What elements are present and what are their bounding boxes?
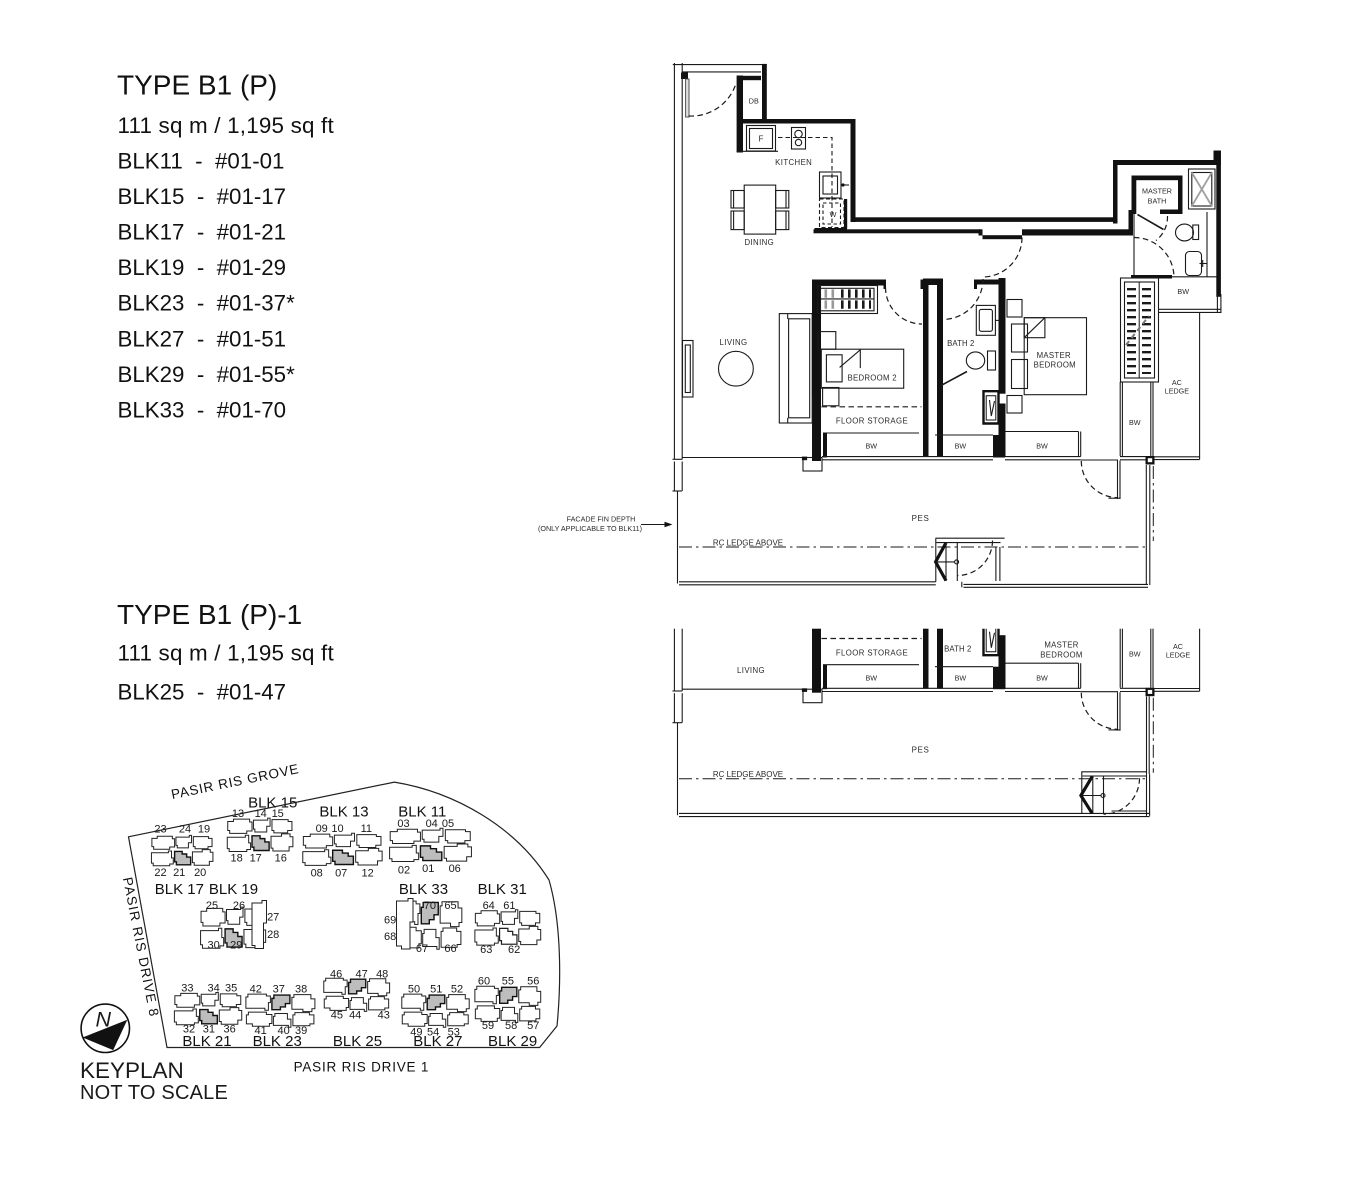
svg-text:59: 59 [482, 1020, 494, 1032]
svg-text:17: 17 [250, 853, 262, 865]
svg-text:38: 38 [295, 984, 307, 996]
svg-text:68: 68 [384, 931, 396, 943]
svg-text:TYPE B1 (P): TYPE B1 (P) [117, 70, 277, 101]
svg-text:37: 37 [273, 984, 285, 996]
svg-text:49: 49 [410, 1027, 422, 1039]
svg-text:05: 05 [442, 818, 454, 830]
svg-text:DINING: DINING [744, 238, 774, 247]
svg-text:27: 27 [267, 911, 279, 923]
svg-text:LIVING: LIVING [737, 666, 765, 675]
svg-text:111 sq m / 1,195 sq ft: 111 sq m / 1,195 sq ft [118, 113, 335, 138]
svg-text:14: 14 [255, 808, 267, 820]
svg-text:61: 61 [503, 900, 515, 912]
svg-text:07: 07 [335, 868, 347, 880]
svg-text:DB: DB [749, 96, 759, 105]
svg-text:22: 22 [154, 867, 166, 879]
svg-text:BLK 31: BLK 31 [478, 881, 527, 898]
svg-text:20: 20 [194, 867, 206, 879]
svg-text:10: 10 [331, 823, 343, 835]
svg-text:29: 29 [230, 939, 242, 951]
svg-text:BW: BW [1129, 418, 1141, 427]
svg-text:16: 16 [275, 853, 287, 865]
svg-text:03: 03 [397, 818, 409, 830]
svg-text:FACADE FIN DEPTH: FACADE FIN DEPTH [567, 515, 636, 524]
svg-text:32: 32 [183, 1023, 195, 1035]
svg-text:FLOOR STORAGE: FLOOR STORAGE [836, 417, 908, 426]
svg-text:08: 08 [311, 868, 323, 880]
svg-text:111 sq m / 1,195 sq ft: 111 sq m / 1,195 sq ft [118, 641, 335, 666]
svg-text:44: 44 [349, 1010, 361, 1022]
svg-text:BLK17 - #01-21: BLK17 - #01-21 [118, 220, 287, 245]
svg-text:04: 04 [426, 818, 438, 830]
svg-text:19: 19 [198, 824, 210, 836]
svg-text:34: 34 [207, 983, 219, 995]
svg-text:47: 47 [355, 968, 367, 980]
svg-text:BLK29 - #01-55*: BLK29 - #01-55* [118, 362, 296, 387]
svg-text:56: 56 [527, 976, 539, 988]
svg-text:09: 09 [316, 823, 328, 835]
svg-text:24: 24 [179, 824, 191, 836]
svg-text:40: 40 [277, 1025, 289, 1037]
svg-text:KITCHEN: KITCHEN [775, 158, 812, 167]
svg-text:48: 48 [376, 968, 388, 980]
svg-text:30: 30 [207, 939, 219, 951]
svg-text:65: 65 [444, 900, 456, 912]
svg-text:PASIR RIS DRIVE 1: PASIR RIS DRIVE 1 [294, 1060, 430, 1075]
svg-text:KEYPLAN: KEYPLAN [80, 1058, 184, 1083]
svg-text:BW: BW [1036, 442, 1048, 451]
svg-text:06: 06 [449, 863, 461, 875]
svg-text:BLK27 - #01-51: BLK27 - #01-51 [118, 327, 287, 352]
svg-text:BLK 33: BLK 33 [399, 881, 448, 898]
svg-text:F: F [759, 135, 764, 144]
svg-text:23: 23 [154, 824, 166, 836]
svg-text:43: 43 [378, 1010, 390, 1022]
svg-text:RC LEDGE ABOVE: RC LEDGE ABOVE [713, 538, 783, 547]
svg-text:54: 54 [427, 1027, 439, 1039]
svg-text:BATH 2: BATH 2 [944, 645, 971, 654]
svg-text:01: 01 [422, 863, 434, 875]
svg-text:67: 67 [416, 943, 428, 955]
svg-text:28: 28 [267, 929, 279, 941]
svg-text:70: 70 [424, 900, 436, 912]
svg-text:58: 58 [505, 1020, 517, 1032]
svg-text:BATH: BATH [1148, 197, 1167, 206]
svg-text:13: 13 [232, 808, 244, 820]
svg-text:02: 02 [398, 864, 410, 876]
svg-text:(ONLY APPLICABLE TO BLK11): (ONLY APPLICABLE TO BLK11) [538, 524, 642, 533]
svg-text:MASTER: MASTER [1037, 351, 1071, 360]
svg-text:BLK19 - #01-29: BLK19 - #01-29 [118, 255, 287, 280]
svg-text:12: 12 [361, 868, 373, 880]
svg-text:57: 57 [527, 1020, 539, 1032]
svg-text:26: 26 [233, 900, 245, 912]
svg-text:62: 62 [508, 944, 520, 956]
svg-text:35: 35 [225, 983, 237, 995]
svg-text:PES: PES [912, 514, 930, 523]
svg-text:BLK23 - #01-37*: BLK23 - #01-37* [118, 291, 296, 316]
svg-text:MASTER: MASTER [1142, 187, 1172, 196]
svg-text:BLK 29: BLK 29 [488, 1033, 537, 1050]
svg-text:BEDROOM: BEDROOM [1034, 361, 1076, 370]
svg-text:15: 15 [272, 808, 284, 820]
svg-text:BLK 21: BLK 21 [182, 1033, 231, 1050]
svg-text:BLK 17: BLK 17 [155, 881, 204, 898]
svg-text:W: W [830, 210, 837, 219]
svg-text:63: 63 [480, 944, 492, 956]
svg-text:BLK25 - #01-47: BLK25 - #01-47 [118, 680, 287, 705]
svg-text:39: 39 [295, 1025, 307, 1037]
svg-text:NOT TO SCALE: NOT TO SCALE [80, 1082, 228, 1104]
svg-text:42: 42 [250, 984, 262, 996]
svg-text:N: N [96, 1008, 112, 1032]
svg-text:45: 45 [331, 1010, 343, 1022]
svg-text:41: 41 [254, 1025, 266, 1037]
svg-text:BLK11 - #01-01: BLK11 - #01-01 [118, 149, 285, 174]
svg-text:BLK 13: BLK 13 [319, 803, 368, 820]
svg-text:33: 33 [181, 983, 193, 995]
svg-text:46: 46 [330, 968, 342, 980]
svg-text:BW: BW [866, 442, 878, 451]
svg-text:BW: BW [955, 442, 967, 451]
svg-text:31: 31 [203, 1023, 215, 1035]
svg-text:64: 64 [483, 900, 495, 912]
svg-text:BLK 25: BLK 25 [333, 1033, 382, 1050]
svg-text:BLK 19: BLK 19 [209, 881, 258, 898]
svg-text:51: 51 [430, 984, 442, 996]
svg-text:60: 60 [478, 976, 490, 988]
svg-text:BEDROOM: BEDROOM [1040, 651, 1082, 660]
svg-text:25: 25 [206, 900, 218, 912]
svg-text:52: 52 [451, 984, 463, 996]
svg-text:18: 18 [230, 853, 242, 865]
svg-text:LIVING: LIVING [720, 338, 748, 347]
svg-text:11: 11 [361, 823, 372, 835]
svg-text:21: 21 [173, 867, 185, 879]
svg-text:36: 36 [223, 1023, 235, 1035]
svg-text:BW: BW [1177, 287, 1189, 296]
svg-text:MASTER: MASTER [1044, 641, 1078, 650]
svg-text:LEDGE: LEDGE [1165, 387, 1190, 396]
svg-text:BATH 2: BATH 2 [947, 339, 974, 348]
svg-text:66: 66 [444, 943, 456, 955]
svg-text:53: 53 [448, 1027, 460, 1039]
svg-text:69: 69 [384, 914, 396, 926]
svg-text:55: 55 [502, 976, 514, 988]
svg-text:BEDROOM 2: BEDROOM 2 [847, 373, 897, 382]
svg-text:TYPE B1 (P)-1: TYPE B1 (P)-1 [117, 599, 302, 630]
svg-text:BLK33 - #01-70: BLK33 - #01-70 [118, 398, 287, 423]
svg-text:50: 50 [408, 984, 420, 996]
svg-text:LEDGE: LEDGE [1166, 651, 1191, 660]
svg-text:BLK15 - #01-17: BLK15 - #01-17 [118, 184, 287, 209]
